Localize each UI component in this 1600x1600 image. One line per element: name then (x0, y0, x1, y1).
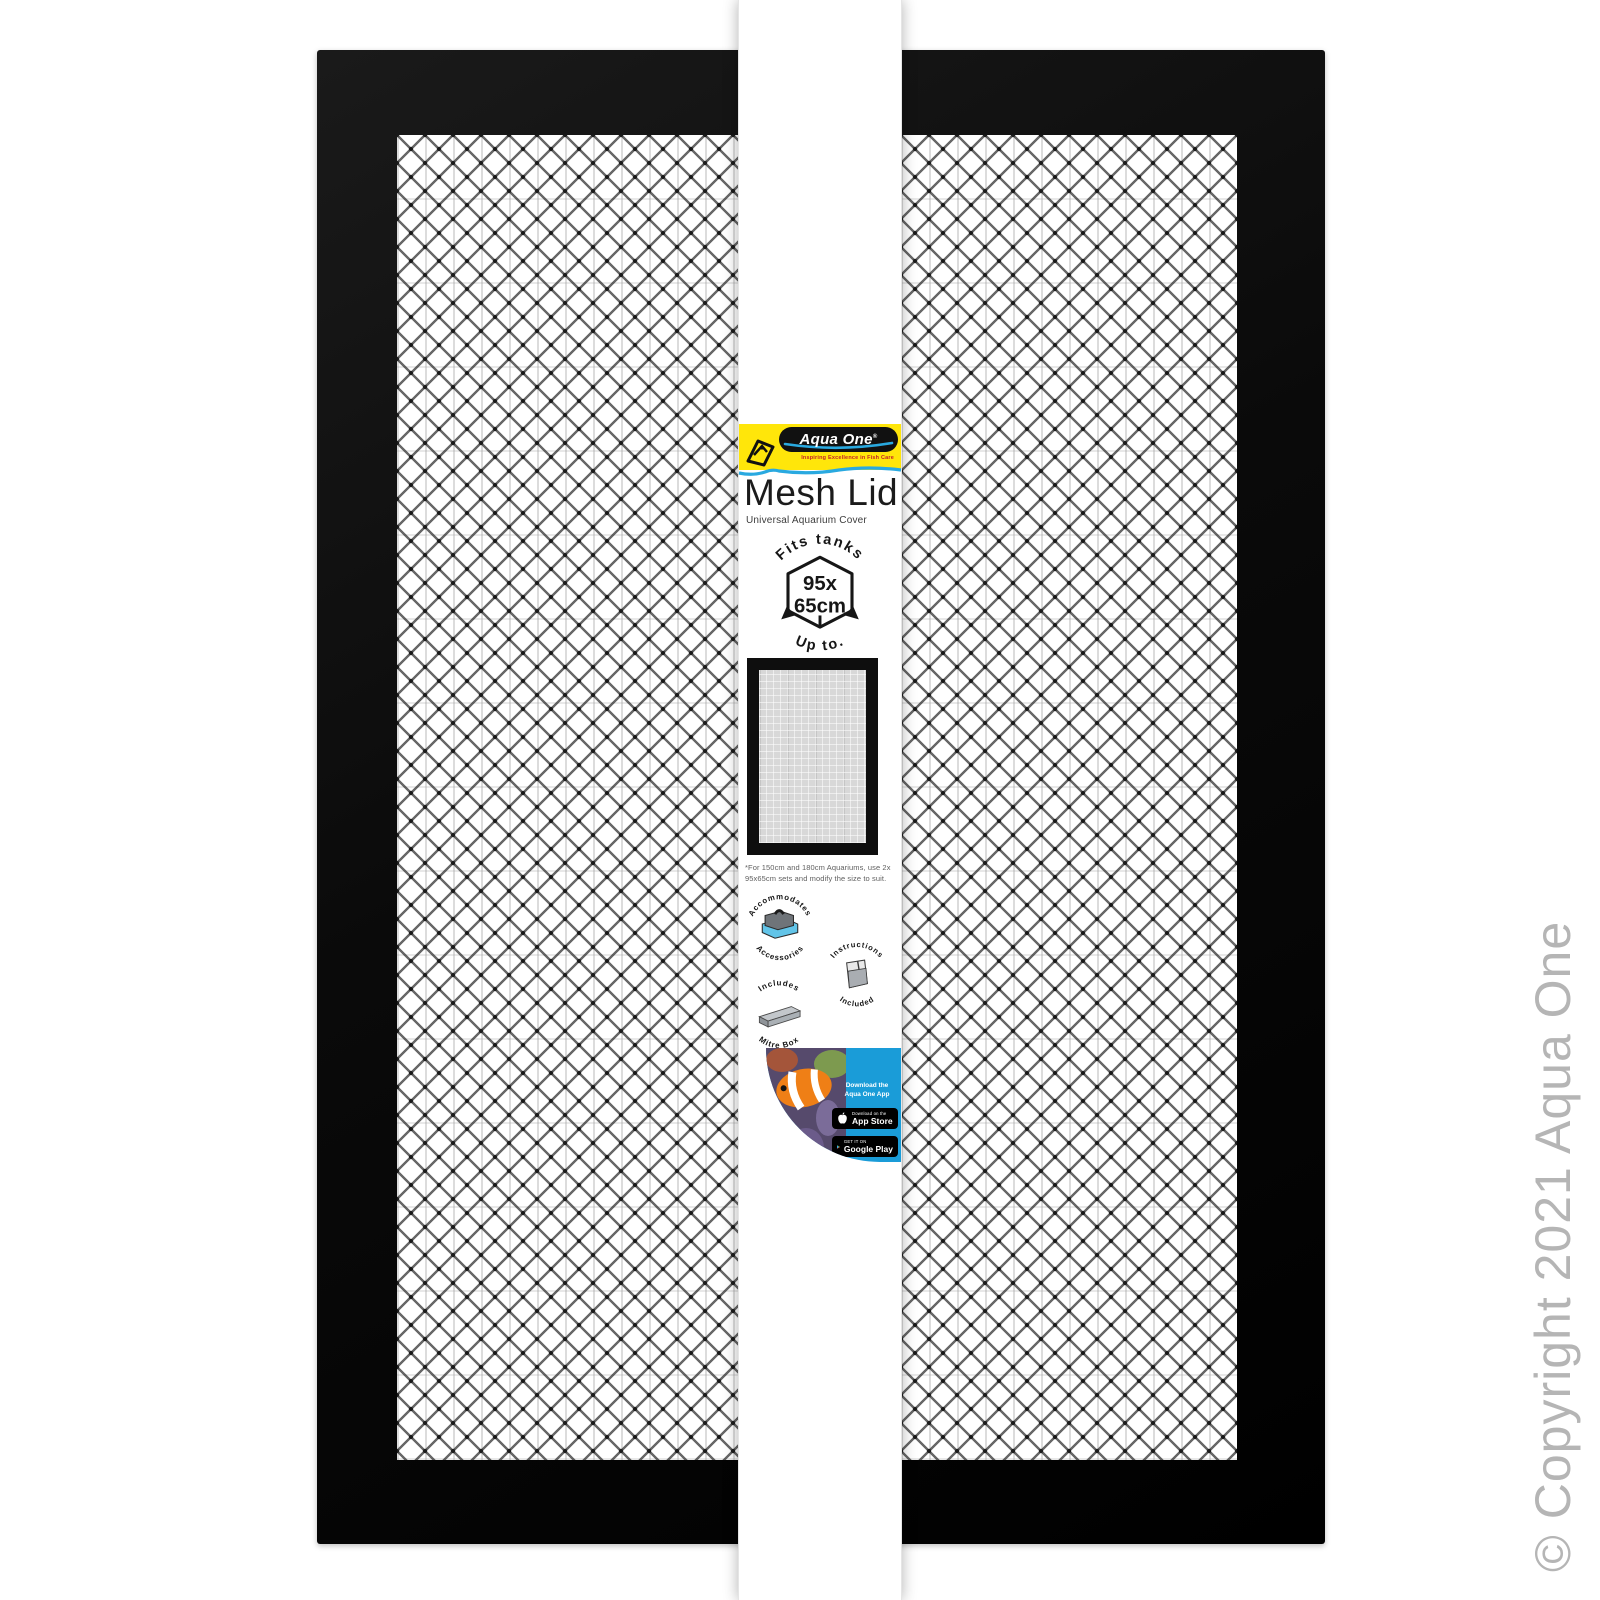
svg-text:Instructions: Instructions (828, 940, 885, 960)
accessories-icon (762, 911, 797, 939)
brand-logo: Aqua One® (779, 427, 898, 452)
svg-text:Up to.: Up to. (793, 633, 847, 654)
svg-text:Includes: Includes (757, 978, 802, 993)
instructions-icon (847, 960, 868, 988)
app-promo-line2: Aqua One App (845, 1091, 890, 1098)
badge1-arc-bottom: Included (838, 995, 876, 1009)
thumbnail-mesh (759, 670, 866, 843)
fine-print-line1: *For 150cm and 180cm Aquariums, use 2x (745, 862, 896, 873)
fits-arc-bottom: Up to. (793, 633, 847, 654)
fine-print-line2: 95x65cm sets and modify the size to suit… (745, 873, 896, 884)
brand-band: Aqua One® Inspiring Excellence in Fish C… (739, 424, 901, 470)
packaging-sleeve: Aqua One® Inspiring Excellence in Fish C… (738, 0, 902, 1600)
fish-logo-icon (741, 432, 781, 474)
app-store-badge: Download on the App Store (832, 1108, 898, 1129)
mitre-box-icon (759, 1007, 800, 1027)
svg-text:Included: Included (838, 995, 876, 1009)
fits-size-line2: 65cm (794, 596, 846, 618)
product-subtitle: Universal Aquarium Cover (746, 515, 867, 526)
registered-mark: ® (873, 434, 878, 440)
google-play-badge: GET IT ON Google Play (832, 1136, 898, 1157)
fine-print: *For 150cm and 180cm Aquariums, use 2x 9… (745, 862, 896, 885)
apple-icon (837, 1112, 848, 1125)
instructions-badge: Instructions Included (819, 938, 895, 1014)
product-thumbnail (747, 658, 878, 855)
app-store-big-text: App Store (852, 1117, 893, 1126)
badge2-arc-top: Includes (757, 978, 802, 993)
mitre-box-badge: Includes Mitre Box (739, 976, 819, 1056)
google-play-icon (837, 1141, 840, 1153)
badge1-arc-top: Instructions (828, 940, 885, 960)
badge0-arc-bottom: Accessories (755, 944, 806, 963)
google-play-big-text: Google Play (844, 1145, 893, 1154)
product-photo: Aqua One® Inspiring Excellence in Fish C… (0, 0, 1600, 1600)
brand-name: Aqua One® (800, 431, 878, 448)
copyright-watermark: © Copyright 2021 Aqua One (1524, 860, 1582, 1572)
app-promo-text: Download the Aqua One App (836, 1082, 898, 1100)
brand-tagline: Inspiring Excellence in Fish Care (801, 455, 894, 461)
svg-text:Accessories: Accessories (755, 944, 806, 963)
app-promo-block: Download the Aqua One App Download on th… (766, 1048, 901, 1162)
accessories-badge: Accommodates Accessories (741, 890, 819, 968)
fits-size-line1: 95x (803, 573, 838, 595)
fits-tanks-emblem: Fits tanks Up to. 95x 65cm (752, 534, 888, 662)
app-promo-line1: Download the (846, 1082, 889, 1089)
product-title: Mesh Lid (744, 472, 898, 514)
